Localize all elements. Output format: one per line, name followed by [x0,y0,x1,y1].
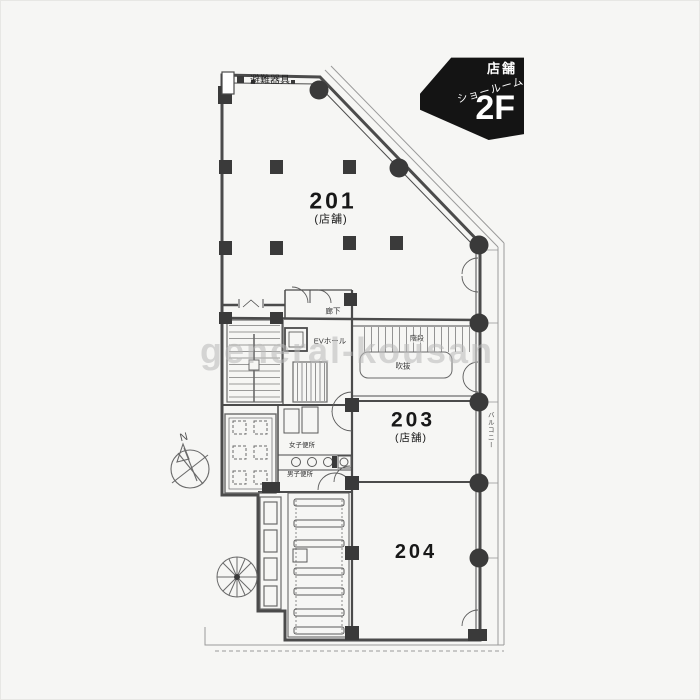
evacuation-equipment-icon [237,76,244,83]
room-201-number: 201 [309,190,356,213]
corner-label-use: 店舗 [487,58,517,77]
floor-plan-page: general-kousan 店舗 ショールーム 2F 避難器具 201 (店舗… [0,0,700,700]
shelving-room [288,493,349,637]
watermark: general-kousan [200,333,494,369]
north-arrow-icon [171,444,209,488]
machine-room [225,414,276,493]
room-204-number: 204 [395,542,437,562]
mens-toilet-label: 男子便所 [287,472,313,479]
service-strip [260,497,281,609]
corner-label-floor: 2F [475,89,515,128]
evacuation-box [222,72,234,94]
balcony-label: バルコニー [486,411,493,449]
door-arcs [292,258,478,626]
room-203-type: (店舗) [395,433,427,444]
womens-toilet-label: 女子便所 [289,443,315,450]
room-201-type: (店舗) [314,215,347,226]
corridor-label: 廊下 [326,307,341,315]
evacuation-label: 避難器具 [250,76,290,86]
room-203-number: 203 [391,410,435,431]
toilet-fixtures [284,407,351,468]
spiral-stair-icon [217,557,257,597]
